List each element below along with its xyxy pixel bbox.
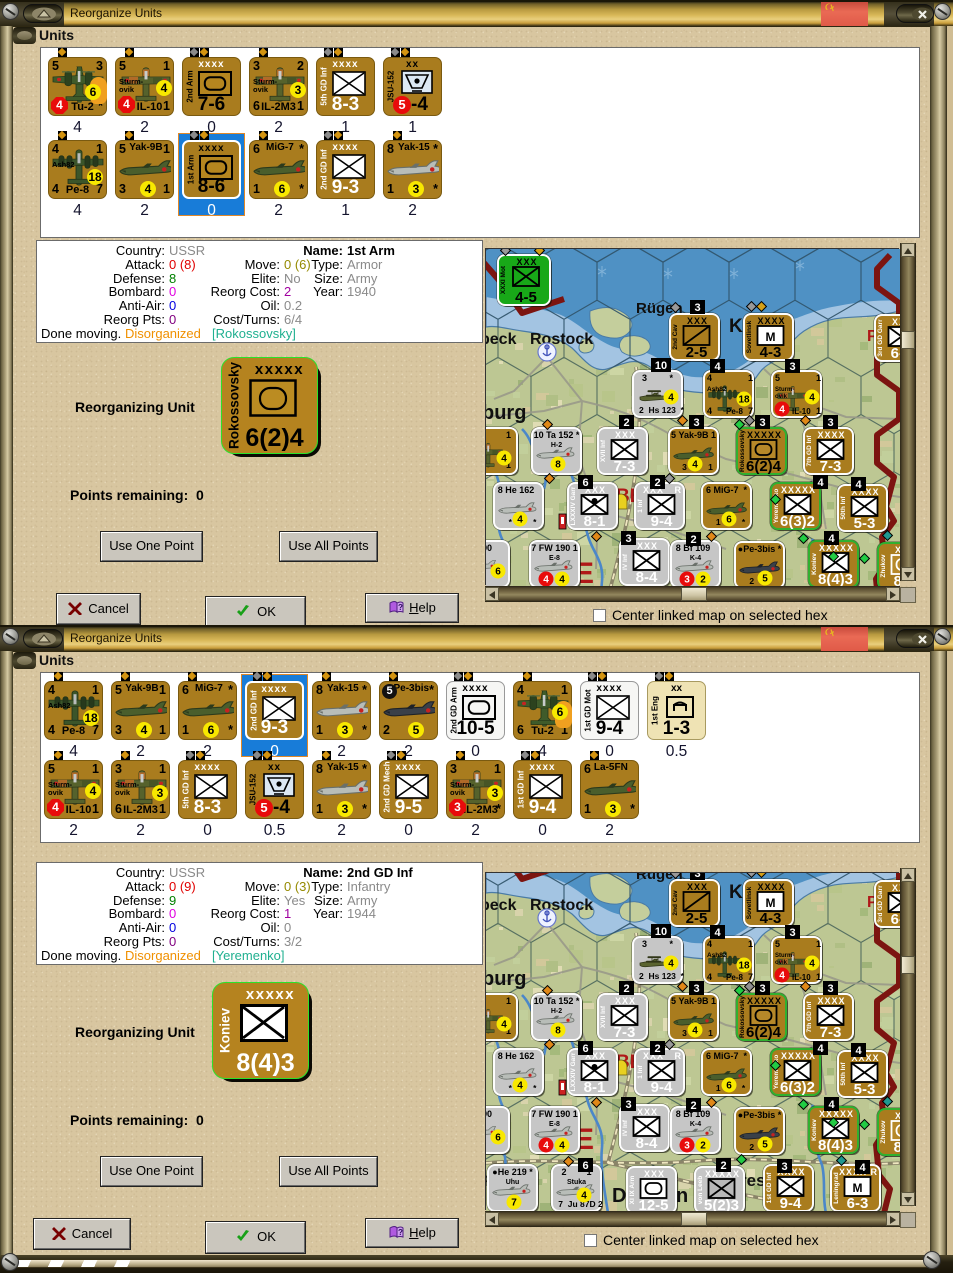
svg-text:4: 4 — [543, 575, 549, 586]
svg-text:●Pe-3bis *: ●Pe-3bis * — [738, 1110, 782, 1120]
svg-text:3: 3 — [759, 417, 765, 429]
svg-text:4-3: 4-3 — [760, 344, 782, 361]
svg-text:4: 4 — [828, 1099, 835, 1111]
svg-text:1: 1 — [506, 430, 511, 440]
svg-text:XXX: XXX — [637, 1107, 658, 1117]
svg-text:XXXX: XXXX — [817, 996, 845, 1006]
svg-text:190: 190 — [486, 1109, 492, 1119]
svg-text:M: M — [853, 1181, 863, 1195]
svg-text:6: 6 — [726, 1081, 732, 1092]
svg-text:6 MiG-7 *: 6 MiG-7 * — [706, 1051, 748, 1061]
svg-text:ovik: ovik — [775, 394, 788, 400]
svg-text:6(3)2: 6(3)2 — [780, 513, 815, 530]
svg-text:4: 4 — [707, 406, 712, 416]
svg-text:K-4: K-4 — [690, 1121, 701, 1128]
svg-text:3: 3 — [789, 927, 795, 939]
svg-text:Koniev: Koniev — [811, 553, 818, 575]
svg-text:1 Inf: 1 Inf — [637, 1064, 644, 1078]
svg-text:XXX: XXX — [637, 541, 658, 551]
svg-text:K: K — [729, 316, 743, 337]
svg-text:8: 8 — [555, 1026, 561, 1037]
svg-text:?: ? — [398, 603, 403, 612]
svg-text:2 Hs 123 *: 2 Hs 123 * — [639, 971, 685, 981]
svg-text:ovik: ovik — [775, 960, 788, 966]
svg-text:1st GD Inf: 1st GD Inf — [766, 1172, 773, 1204]
svg-text:4: 4 — [809, 393, 815, 404]
svg-text:IV Inf: IV Inf — [622, 553, 629, 570]
svg-text:5: 5 — [775, 939, 780, 949]
svg-text:6: 6 — [495, 1133, 501, 1144]
svg-text:1 Inf: 1 Inf — [637, 498, 644, 512]
svg-text:Stuka: Stuka — [567, 1179, 586, 1186]
svg-text:7-3: 7-3 — [820, 1024, 842, 1041]
svg-text:1: 1 — [816, 406, 821, 416]
svg-text:4: 4 — [581, 1191, 587, 1202]
svg-text:7: 7 — [748, 972, 753, 982]
svg-text:7 FW 190 1: 7 FW 190 1 — [531, 543, 578, 553]
svg-text:12-5: 12-5 — [638, 1197, 668, 1211]
svg-text:10 Ta 152 *: 10 Ta 152 * — [534, 996, 580, 1006]
svg-text:1: 1 — [748, 373, 753, 383]
svg-text:8-1: 8-1 — [584, 1079, 606, 1096]
svg-text:2-5: 2-5 — [686, 910, 708, 927]
svg-text:beck: beck — [486, 331, 517, 348]
svg-text:50th Inf: 50th Inf — [840, 1062, 847, 1086]
svg-text:3: 3 — [625, 533, 631, 545]
svg-text:3rd GD Garr: 3rd GD Garr — [877, 319, 884, 357]
svg-text:IL-10: IL-10 — [792, 973, 811, 982]
svg-text:4: 4 — [707, 972, 712, 982]
svg-text:Koniev: Koniev — [811, 1119, 818, 1141]
svg-text:Ash82: Ash82 — [707, 386, 727, 393]
svg-text:4: 4 — [543, 1141, 549, 1152]
svg-text:3: 3 — [625, 1099, 631, 1111]
svg-text:5 Yak-9B 1: 5 Yak-9B 1 — [671, 996, 716, 1006]
svg-text:8(4)3: 8(4)3 — [818, 571, 853, 586]
svg-text:4: 4 — [817, 1043, 824, 1055]
svg-text:8-4: 8-4 — [636, 1135, 658, 1152]
svg-text:3: 3 — [827, 417, 833, 429]
svg-text:Ash82: Ash82 — [707, 952, 727, 959]
svg-text:2nd Cav: 2nd Cav — [672, 890, 679, 916]
svg-text:Sovetlinsk: Sovetlinsk — [746, 886, 753, 919]
svg-text:4: 4 — [501, 1020, 507, 1031]
svg-text:K-4: K-4 — [690, 555, 701, 562]
svg-text:Zhukov: Zhukov — [880, 1120, 887, 1143]
svg-text:8: 8 — [555, 460, 561, 471]
svg-text:XXXI Mot: XXXI Mot — [500, 265, 507, 294]
svg-text:50th Inf: 50th Inf — [840, 496, 847, 520]
svg-text:4: 4 — [779, 971, 785, 982]
svg-text:9-4: 9-4 — [780, 1195, 802, 1211]
svg-text:3 *: 3 * — [642, 373, 674, 383]
svg-text:7: 7 — [748, 406, 753, 416]
svg-text:2: 2 — [690, 534, 696, 546]
svg-text:beck: beck — [486, 897, 517, 914]
svg-text:4-3: 4-3 — [760, 910, 782, 927]
svg-text:Rokossovsky: Rokossovsky — [739, 430, 746, 472]
svg-text:XXXXX: XXXXX — [781, 1051, 816, 1061]
svg-text:Yeremenko: Yeremenko — [773, 489, 780, 524]
svg-text:3: 3 — [789, 361, 795, 373]
svg-text:IL-10: IL-10 — [792, 407, 811, 416]
svg-text:4: 4 — [714, 927, 721, 939]
svg-text:H-2: H-2 — [551, 442, 562, 449]
svg-text:?: ? — [398, 1228, 403, 1237]
svg-text:1: 1 — [816, 373, 821, 383]
svg-text:4: 4 — [692, 460, 698, 471]
svg-text:7th GD Inf: 7th GD Inf — [806, 435, 813, 467]
svg-text:6: 6 — [582, 477, 588, 489]
svg-text:3: 3 — [827, 983, 833, 995]
svg-text:Sturm-: Sturm- — [775, 387, 794, 393]
svg-text:4: 4 — [668, 959, 674, 970]
svg-text:8(4)3: 8(4)3 — [818, 1137, 853, 1154]
svg-text:6: 6 — [582, 1043, 588, 1055]
svg-text:4: 4 — [692, 1026, 698, 1037]
svg-text:8-1: 8-1 — [584, 513, 606, 530]
svg-text:Pe-8: Pe-8 — [726, 973, 743, 982]
svg-text:2: 2 — [654, 477, 660, 489]
svg-text:190: 190 — [486, 543, 492, 553]
svg-text:6: 6 — [582, 1160, 588, 1172]
svg-text:4: 4 — [517, 515, 523, 526]
svg-text:H-2: H-2 — [551, 1008, 562, 1015]
svg-text:3: 3 — [781, 1161, 787, 1173]
svg-text:XXX: XXX — [687, 882, 708, 892]
svg-text:4-5: 4-5 — [515, 289, 537, 306]
svg-text:LXXXIV Garr: LXXXIV Garr — [570, 486, 577, 525]
svg-text:2 Hs 123 *: 2 Hs 123 * — [639, 405, 685, 415]
svg-text:XXXXX: XXXXX — [781, 485, 816, 495]
svg-text:3: 3 — [684, 575, 690, 586]
svg-text:XVII Inf: XVII Inf — [600, 439, 607, 462]
svg-text:von Leeb: von Leeb — [697, 1176, 704, 1205]
svg-text:●Pe-3bis *: ●Pe-3bis * — [738, 544, 782, 554]
svg-text:XVII Inf: XVII Inf — [600, 1005, 607, 1028]
svg-text:5-3: 5-3 — [854, 515, 876, 532]
svg-text:E-8: E-8 — [549, 555, 560, 562]
svg-text:7-3: 7-3 — [820, 458, 842, 475]
svg-text:7-3: 7-3 — [614, 1024, 636, 1041]
svg-text:6-3: 6-3 — [847, 1195, 869, 1211]
svg-text:3: 3 — [693, 983, 699, 995]
svg-text:K: K — [729, 882, 743, 903]
svg-text:4: 4 — [817, 477, 824, 489]
svg-text:6-4: 6-4 — [891, 911, 900, 928]
svg-text:2: 2 — [700, 575, 706, 586]
svg-text:2: 2 — [720, 1160, 726, 1172]
svg-text:Zhukov: Zhukov — [880, 554, 887, 577]
svg-text:2-5: 2-5 — [686, 344, 708, 361]
svg-text:6(3)2: 6(3)2 — [780, 1079, 815, 1096]
svg-text:Sturm-: Sturm- — [775, 953, 794, 959]
svg-text:10: 10 — [655, 926, 667, 938]
svg-text:7 FW 190 1: 7 FW 190 1 — [531, 1109, 578, 1119]
svg-text:8 He 162: 8 He 162 — [498, 1051, 540, 1061]
svg-text:4: 4 — [714, 361, 721, 373]
svg-text:6: 6 — [726, 515, 732, 526]
svg-text:Uhu: Uhu — [506, 1179, 520, 1186]
svg-text:10: 10 — [655, 360, 667, 372]
svg-text:burg: burg — [486, 968, 526, 990]
svg-text:XXX: XXX — [644, 1169, 665, 1179]
svg-text:IV Inf: IV Inf — [622, 1119, 629, 1136]
svg-text:Yeremenko: Yeremenko — [773, 1055, 780, 1090]
svg-text:XI IX Arm: XI IX Arm — [629, 1175, 636, 1204]
svg-text:3: 3 — [694, 873, 700, 880]
svg-text:4: 4 — [809, 959, 815, 970]
svg-text:XXXXX: XXXXX — [747, 996, 782, 1006]
svg-text:4: 4 — [517, 1081, 523, 1092]
svg-text:6-4: 6-4 — [891, 345, 900, 362]
svg-text:LXXXIV Garr: LXXXIV Garr — [570, 1052, 577, 1091]
svg-text:XXX: XXX — [516, 257, 537, 267]
svg-text:5: 5 — [775, 373, 780, 383]
svg-text:3rd GD Garr: 3rd GD Garr — [877, 885, 884, 923]
svg-text:3 *: 3 * — [642, 939, 674, 949]
svg-text:7-3: 7-3 — [614, 458, 636, 475]
svg-text:Rostock: Rostock — [530, 331, 593, 348]
svg-text:5: 5 — [762, 1140, 768, 1151]
svg-text:3: 3 — [684, 1141, 690, 1152]
svg-text:4: 4 — [668, 393, 674, 404]
svg-text:2: 2 — [690, 1100, 696, 1112]
svg-text:M: M — [766, 330, 776, 344]
svg-text:10 Ta 152 *: 10 Ta 152 * — [534, 430, 580, 440]
svg-text:7th GD Inf: 7th GD Inf — [806, 1001, 813, 1033]
svg-text:6: 6 — [495, 567, 501, 578]
svg-text:XXXXX: XXXXX — [747, 430, 782, 440]
svg-text:2nd Cav: 2nd Cav — [672, 324, 679, 350]
svg-text:1: 1 — [748, 939, 753, 949]
svg-text:Leningrad: Leningrad — [833, 1172, 840, 1203]
svg-text:3: 3 — [693, 417, 699, 429]
svg-text:XXX: XXX — [687, 316, 708, 326]
svg-text:XXX: XXX — [615, 996, 636, 1006]
svg-text:9-4: 9-4 — [651, 1079, 673, 1096]
svg-text:Rostock: Rostock — [530, 897, 593, 914]
svg-text:Rokossovsky: Rokossovsky — [739, 996, 746, 1038]
svg-text:●He 219 *: ●He 219 * — [492, 1167, 533, 1177]
svg-text:18: 18 — [738, 395, 750, 406]
svg-text:1: 1 — [816, 972, 821, 982]
svg-text:5-3: 5-3 — [854, 1081, 876, 1098]
svg-text:4: 4 — [559, 575, 565, 586]
svg-text:7: 7 — [511, 1198, 517, 1209]
svg-text:Sovetlinsk: Sovetlinsk — [746, 320, 753, 353]
svg-text:9-4: 9-4 — [651, 513, 673, 530]
svg-text:4: 4 — [779, 405, 785, 416]
svg-text:6 MiG-7 *: 6 MiG-7 * — [706, 485, 748, 495]
svg-text:4: 4 — [559, 1141, 565, 1152]
svg-text:18: 18 — [738, 961, 750, 972]
svg-text:2: 2 — [623, 983, 629, 995]
svg-text:6(2)4: 6(2)4 — [746, 1024, 782, 1041]
svg-text:XXX: XXX — [615, 430, 636, 440]
svg-text:1: 1 — [816, 939, 821, 949]
svg-text:E-8: E-8 — [549, 1121, 560, 1128]
svg-text:6(2)4: 6(2)4 — [746, 458, 782, 475]
svg-text:XXXX: XXXX — [817, 430, 845, 440]
svg-text:4: 4 — [859, 1162, 866, 1174]
svg-text:8-4: 8-4 — [636, 569, 658, 586]
svg-text:3: 3 — [759, 983, 765, 995]
svg-text:2: 2 — [700, 1141, 706, 1152]
svg-text:4: 4 — [855, 1045, 862, 1057]
svg-text:XXX: XXX — [892, 317, 900, 327]
svg-text:XXXX: XXXX — [757, 882, 785, 892]
svg-text:5 Yak-9B 1: 5 Yak-9B 1 — [671, 430, 716, 440]
svg-text:4: 4 — [707, 939, 712, 949]
svg-text:1: 1 — [506, 996, 511, 1006]
svg-text:3: 3 — [694, 302, 700, 314]
svg-text:4: 4 — [855, 479, 862, 491]
svg-text:4: 4 — [501, 454, 507, 465]
svg-text:5: 5 — [762, 574, 768, 585]
svg-text:5(2)3: 5(2)3 — [704, 1197, 739, 1211]
svg-text:M: M — [766, 896, 776, 910]
svg-text:2: 2 — [623, 417, 629, 429]
svg-text:4: 4 — [828, 533, 835, 545]
svg-text:Pe-8: Pe-8 — [726, 407, 743, 416]
svg-text:4: 4 — [707, 373, 712, 383]
svg-text:burg: burg — [486, 402, 526, 424]
svg-text:D: D — [612, 1185, 626, 1207]
svg-text:XXXX: XXXX — [757, 316, 785, 326]
svg-text:XXX: XXX — [892, 883, 900, 893]
svg-text:2: 2 — [654, 1043, 660, 1055]
svg-text:8 He 162: 8 He 162 — [498, 485, 540, 495]
